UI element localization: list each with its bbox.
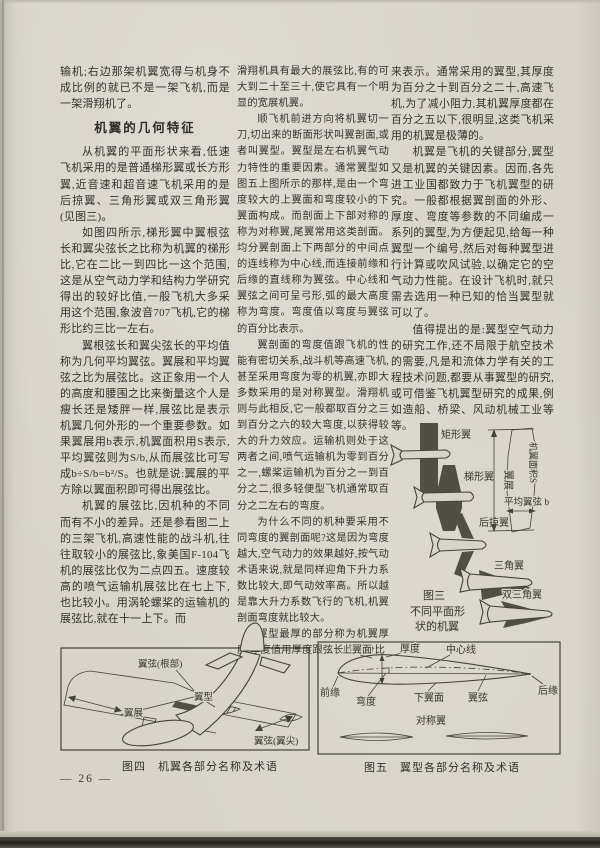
vertical-fin	[240, 623, 264, 651]
paragraph: 输机;右边那架机翼宽得与机身不成比例的就已不是一架飞机,而是一架滑翔机了。	[60, 64, 230, 112]
figure3-wing-planforms: 矩形翼 梯形翼 后掠翼 三角翼 双三角翼 翼展 机翼面积S 平均翼弦 b	[384, 420, 562, 646]
arrowhead	[285, 716, 293, 723]
book-bottom-edge	[0, 837, 600, 848]
leader-line	[333, 676, 338, 687]
page-top-edge-shade	[0, 0, 600, 4]
paragraph: 值得提出的是:翼型空气动力的研究工作,还不局限于航空技术的需要,凡是和流体力学有…	[391, 322, 554, 435]
plane-fuselage	[400, 450, 450, 459]
tick-line	[488, 429, 534, 430]
mean-chord-label: 平均翼弦 b	[504, 496, 549, 508]
figure4-caption: 图四 机翼各部分名称及术语	[80, 758, 320, 774]
rectangular-wing-label: 矩形翼	[441, 428, 471, 441]
arrowhead	[380, 655, 385, 662]
plane-fuselage	[488, 606, 553, 622]
span-label: 翼展	[502, 470, 514, 490]
center-line-label: 中心线	[446, 643, 476, 656]
leading-edge-label: 前缘	[320, 686, 340, 699]
paragraph: 顺飞机前进方向将机翼切一刀,切出来的断面形状叫翼剖面,或者叫翼型。翼型是左右机翼…	[237, 112, 389, 337]
column-right: 来表示。通常采用的翼型,其厚度为百分之十到百分之二十,高速飞机,为了减小阻力,其…	[391, 64, 554, 434]
chord-label: 翼弦	[468, 691, 488, 704]
leader-line	[176, 670, 196, 693]
arrowhead	[68, 696, 76, 703]
double-delta-label: 双三角翼	[502, 589, 542, 601]
tip-chord-arrow-line	[259, 718, 289, 729]
figure5-caption: 图五 翼型各部分名称及术语	[322, 759, 562, 775]
figure3-caption-line2: 不同平面形	[410, 605, 465, 618]
paragraph: 来表示。通常采用的翼型,其厚度为百分之十到百分之二十,高速飞机,为了减小阻力,其…	[391, 64, 554, 144]
figure4-aircraft-diagram: 翼展 翼弦(翼尖) 翼弦(根部) 翼型	[58, 615, 312, 756]
thickness-label: 厚度	[400, 642, 420, 655]
paragraph: 机翼是飞机的关键部分,翼型又是机翼的关键因素。因而,各先进工业国都致力于飞机翼型…	[391, 144, 554, 321]
lower-surface-label: 下翼面	[414, 692, 444, 704]
stabilizer-right	[260, 657, 290, 673]
plane-fuselage	[438, 539, 487, 551]
plane-fuselage	[422, 492, 474, 502]
symmetric-airfoil-label: 对称翼	[416, 714, 446, 727]
figure3-caption-line1: 图三	[423, 589, 445, 602]
upper-surface-label: 上翼面	[342, 644, 372, 656]
leader-line	[428, 683, 436, 691]
delta-wing-label: 三角翼	[494, 560, 524, 572]
camber-label: 弯度	[356, 695, 376, 708]
leader-line	[478, 675, 486, 691]
tick-line	[488, 530, 534, 531]
trapezoid-wing-label: 梯形翼	[464, 470, 494, 483]
span-label: 翼展	[124, 708, 144, 719]
leader-line	[426, 655, 450, 668]
paragraph: 翼根弦长和翼尖弦长的平均值称为几何平均翼弦。翼展和平均翼弦之比为展弦比。这正象用…	[60, 338, 230, 499]
figure3-caption-line3: 状的机翼	[415, 619, 459, 633]
arrowhead	[255, 724, 263, 731]
leader-line	[368, 673, 386, 696]
arrowhead	[114, 706, 122, 713]
root-chord-label: 翼弦(根部)	[138, 658, 182, 670]
scanned-book-page: 输机;右边那架机翼宽得与机身不成比例的就已不是一架飞机,而是一架滑翔机了。 机翼…	[0, 0, 600, 848]
page-number: — 26 —	[60, 773, 112, 785]
rectangular-wing-shape	[420, 423, 438, 496]
paragraph: 从机翼的平面形状来看,低速飞机采用的是普通梯形翼或长方形翼,近音速和超音速飞机采…	[60, 144, 230, 224]
paragraph: 机翼的展弦比,因机种的不同而有不小的差异。还是参看图二上的三架飞机,高速性能的战…	[60, 498, 230, 627]
section-heading: 机翼的几何特征	[60, 120, 230, 136]
leader-line	[532, 676, 543, 684]
swept-wing-upper	[454, 513, 474, 539]
airfoil-label: 翼型	[194, 692, 214, 703]
nose-cone	[121, 715, 196, 750]
column-middle: 滑翔机具有最大的展弦比,有的可大到二十至三十,使它具有一个明显的宽展机翼。 顺飞…	[237, 64, 389, 659]
wing-area-label: 机翼面积S	[528, 442, 539, 483]
tip-chord-label: 翼弦(翼尖)	[254, 735, 298, 747]
span-arrow-line	[72, 698, 118, 710]
paragraph: 翼剖面的弯度值跟飞机的性能有密切关系,战斗机等高速飞机,甚至采用弯度为零的机翼,…	[237, 338, 389, 515]
column-left: 输机;右边那架机翼宽得与机身不成比例的就已不是一架飞机,而是一架滑翔机了。 机翼…	[60, 64, 230, 627]
paragraph: 滑翔机具有最大的展弦比,有的可大到二十至三十,使它具有一个明显的宽展机翼。	[237, 64, 389, 112]
chord-line	[338, 673, 531, 674]
paragraph: 如图四所示,梯形翼中翼根弦长和翼尖弦长之比称为机翼的梯形比,它在二比一到四比一这…	[60, 225, 230, 338]
binding-edge-line	[2, 0, 4, 848]
trailing-edge-label: 后缘	[538, 684, 558, 697]
paragraph: 为什么不同的机种要采用不同弯度的翼剖面呢?这是因为弯度越大,空气动力的效果越好,…	[237, 515, 389, 628]
